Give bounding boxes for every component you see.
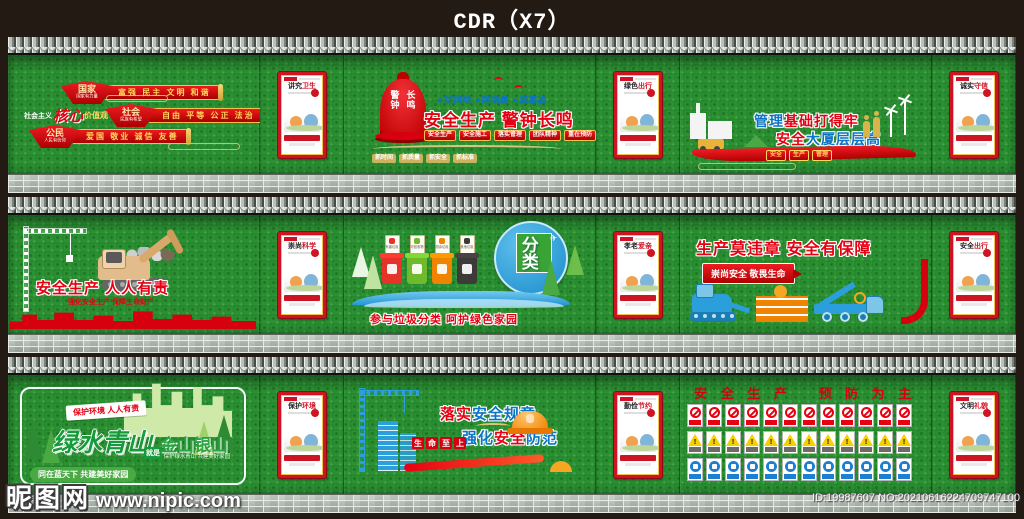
bell-title: 安全生产 警钟长鸣: [424, 106, 574, 131]
prohibition-sign: [782, 404, 798, 427]
factory-chimney: [696, 103, 700, 113]
warning-sign-label-band: [746, 447, 758, 452]
poster-footer-line: [625, 463, 651, 466]
bin-sign-card: 厨余垃圾: [435, 235, 450, 254]
bin-label: 有害垃圾: [386, 246, 399, 249]
poster-red-band: [620, 135, 656, 141]
responsibility-title: 安全生产 人人有责: [36, 277, 169, 298]
mandatory-sign-glyph: [728, 461, 739, 472]
prohibition-sign-glyph: [785, 407, 796, 418]
mandatory-sign: [858, 458, 874, 481]
warning-sign-label-band: [879, 447, 891, 452]
warning-sign-glyph: [745, 434, 759, 446]
crane-truck-icon: [814, 276, 888, 322]
roof-tiles: [8, 37, 1016, 55]
poster-title-black: 崇尚: [288, 243, 302, 250]
bin-label: 可回收物: [411, 246, 424, 249]
mandatory-sign-glyph: [785, 461, 796, 472]
prohibition-sign-glyph: [804, 407, 815, 418]
watermark-site-url: www.nipic.com: [96, 490, 241, 513]
prohibition-sign: [896, 404, 912, 427]
title-part: 落实: [440, 406, 472, 423]
wall-row-2: 安全生产 人人有责 强化安全生产 保障生命财产 崇尚科学 有害垃圾可回收物厨余垃…: [8, 197, 1016, 350]
poster-header: [620, 77, 656, 82]
poster-panel: 安全出行: [932, 215, 1016, 334]
title-part: 强化: [462, 430, 494, 447]
warning-sign-glyph: [783, 434, 797, 446]
illustration-shape: [622, 125, 662, 131]
poster-panel: 孝老爱亲: [596, 215, 680, 334]
prohibition-sign: [801, 404, 817, 427]
poster-red-band: [620, 455, 656, 461]
prohibition-sign-label-band: [765, 420, 777, 425]
warning-sign: [896, 431, 912, 454]
warning-sign-glyph: [802, 434, 816, 446]
warning-sign-label-band: [860, 447, 872, 452]
fan-title: 国家: [78, 85, 96, 94]
green-title-main: 绿水青山: [52, 423, 152, 459]
poster-illustration: [956, 256, 992, 292]
illustration-shape: [958, 445, 998, 451]
illustration-shape: [958, 125, 998, 131]
mural-safety-rules: 落实安全规章 强化安全防范 生 命 至 上: [344, 375, 596, 494]
poster-illustration: [956, 416, 992, 452]
poster-header: [284, 397, 320, 402]
mandatory-sign-label-band: [708, 474, 720, 479]
poster-seal-icon: [311, 409, 319, 417]
poster-illustration: [620, 256, 656, 292]
illustration-shape: [958, 285, 998, 291]
mandatory-sign: [763, 458, 779, 481]
warning-sign-label-band: [708, 447, 720, 452]
poster-illustration: [284, 416, 320, 452]
signs-grid: [687, 404, 912, 485]
poster-seal-icon: [647, 409, 655, 417]
poster-red-band: [956, 455, 992, 461]
mandatory-sign: [839, 458, 855, 481]
poster-footer-line: [961, 463, 987, 466]
poster-header: [620, 237, 656, 242]
prohibition-sign: [687, 404, 703, 427]
square-char: 命: [426, 437, 438, 449]
core-values-row-citizen: 公民 人民有信仰 爱国 敬业 诚信 友善: [28, 125, 191, 148]
poster-frame: 安全出行: [950, 232, 998, 318]
poster-seal-icon: [647, 249, 655, 257]
poster-title-black: 保护: [288, 403, 302, 410]
mandatory-sign-glyph: [766, 461, 777, 472]
bell-red-tabs: 安全生产 安全施工 落实管理 团队精神 重在预防: [424, 130, 596, 141]
poster-red-band: [620, 295, 656, 301]
safety-helmet-icon: [512, 411, 548, 430]
wall-row-1: 社会主义 核心 价值观 国家 国家有力量 富强 民主 文明 和谐 社会 民族有希…: [8, 37, 1016, 190]
title-part: 基础打得牢: [784, 113, 859, 129]
mandatory-sign-glyph: [880, 461, 891, 472]
design-preview-image: CDR（X7） 社会主义 核心 价值观 国家 国家有力量 富强 民主 文明 和谐: [0, 0, 1024, 519]
poster-footer-line: [961, 143, 987, 146]
format-label: CDR（X7）: [453, 3, 570, 35]
poster-seal-icon: [983, 409, 991, 417]
poster-title-black: 诚实: [960, 83, 974, 90]
wall-row-1-panels: 社会主义 核心 价值观 国家 国家有力量 富强 民主 文明 和谐 社会 民族有希…: [8, 55, 1016, 174]
illustration-shape: [286, 445, 326, 451]
warning-sign-label-band: [765, 447, 777, 452]
poster-frame: 崇尚科学: [278, 232, 326, 318]
poster-title-black: 文明: [960, 403, 974, 410]
prohibition-sign-label-band: [879, 420, 891, 425]
wall-row-2-panels: 安全生产 人人有责 强化安全生产 保障生命财产 崇尚科学 有害垃圾可回收物厨余垃…: [8, 215, 1016, 334]
square-char: 至: [440, 437, 452, 449]
fan-subtitle: 民族有希望: [120, 118, 142, 122]
warning-sign-glyph: [897, 434, 911, 446]
watermark-site-name: 昵图网: [6, 478, 90, 515]
prohibition-sign: [763, 404, 779, 427]
fan-subtitle: 国家有力量: [76, 95, 98, 99]
prohibition-sign-glyph: [823, 407, 834, 418]
poster-header: [284, 77, 320, 82]
watermark-id: ID:19987607 NO:20210616224709747100: [812, 492, 1020, 504]
mural-safety-signs: 安 全 生 产 预 防 为 主: [680, 375, 932, 494]
core-values-row-society: 社会 民族有希望 自由 平等 公正 法治: [104, 104, 260, 127]
prohibition-sign-row: [687, 404, 912, 427]
poster-title-black: 勤俭: [624, 403, 638, 410]
bell-text-col1: 警钟: [389, 90, 402, 135]
fan-subtitle: 人民有信仰: [44, 139, 66, 143]
poster-red-band: [284, 295, 320, 301]
prohibition-sign-glyph: [728, 407, 739, 418]
prohibition-sign-glyph: [709, 407, 720, 418]
poster-frame: 保护环境: [278, 392, 326, 478]
roof-tiles: [8, 357, 1016, 375]
prohibition-sign-glyph: [747, 407, 758, 418]
tree-icon: [542, 259, 560, 295]
mandatory-sign-label-band: [765, 474, 777, 479]
prohibition-sign-label-band: [727, 420, 739, 425]
bin-face-icon: [412, 264, 422, 274]
poster-red-band: [284, 455, 320, 461]
garbage-bin: 厨余垃圾: [432, 235, 452, 284]
mandatory-sign-label-band: [689, 474, 701, 479]
prohibition-sign-label-band: [803, 420, 815, 425]
bell-text-col2: 长鸣: [405, 90, 418, 135]
brick-wall-icon: [756, 296, 808, 322]
brick-base: [8, 174, 1016, 193]
warning-sign-glyph: [859, 434, 873, 446]
poster-panel: 崇尚科学: [260, 215, 344, 334]
poster-panel: 勤俭节约: [596, 375, 680, 494]
mandatory-sign: [820, 458, 836, 481]
mural-no-violation: 生产莫违章 安全有保障 崇尚安全 敬畏生命: [680, 215, 932, 334]
prohibition-sign: [839, 404, 855, 427]
mandatory-sign-glyph: [899, 461, 910, 472]
poster-red-band: [284, 135, 320, 141]
poster-footer-line: [289, 303, 315, 306]
mandatory-sign: [744, 458, 760, 481]
garbage-bin-body: [382, 257, 402, 284]
bell-gold-tabs: 抓时间 抓质量 抓安全 抓标准: [372, 154, 477, 163]
brick-base: [8, 334, 1016, 353]
mandatory-sign-glyph: [709, 461, 720, 472]
warning-sign-label-band: [822, 447, 834, 452]
poster-frame: 孝老爱亲: [614, 232, 662, 318]
bin-sign-card: 其他垃圾: [460, 235, 475, 254]
garbage-bin: 有害垃圾: [382, 235, 402, 284]
prohibition-sign-label-band: [708, 420, 720, 425]
poster-footer-line: [625, 303, 651, 306]
garbage-bin-body: [407, 257, 427, 284]
mandatory-sign: [782, 458, 798, 481]
illustration-shape: [286, 125, 326, 131]
warning-sign: [820, 431, 836, 454]
illustration-shape: [286, 285, 326, 291]
warning-sign-label-band: [689, 447, 701, 452]
poster-panel: 讲究卫生: [260, 55, 344, 174]
warning-sign: [801, 431, 817, 454]
mandatory-sign-glyph: [690, 461, 701, 472]
prohibition-sign-glyph: [861, 407, 872, 418]
garbage-slogan: 参与垃圾分类 呵护绿色家园: [370, 311, 518, 327]
mural-alarm-bell: 警钟 长鸣 ★防风险 ★除隐患 ★遏事故 安全生产 警钟长鸣 安全生产 安全施工…: [344, 55, 596, 174]
warning-sign-glyph: [840, 434, 854, 446]
bell-subtitle: ★防风险 ★除隐患 ★遏事故: [436, 93, 546, 106]
tree-icon: [24, 419, 42, 459]
prohibition-sign-glyph: [690, 407, 701, 418]
poster-seal-icon: [311, 89, 319, 97]
warning-sign: [858, 431, 874, 454]
title-part: 安全: [776, 131, 806, 147]
poster-title-black: 讲究: [288, 83, 302, 90]
mandatory-sign-label-band: [784, 474, 796, 479]
warning-sign-label-band: [841, 447, 853, 452]
bird-icon: [494, 77, 503, 84]
bin-label: 厨余垃圾: [436, 246, 449, 249]
mandatory-sign: [687, 458, 703, 481]
values-banner: 自由 平等 公正 法治: [149, 108, 260, 123]
prohibition-sign: [725, 404, 741, 427]
warning-sign-label-band: [803, 447, 815, 452]
prohibition-sign-label-band: [898, 420, 910, 425]
square-char: 上: [454, 437, 466, 449]
mandatory-sign-label-band: [860, 474, 872, 479]
alarm-bell-icon: 警钟 长鸣: [380, 79, 426, 135]
red-tab: 安全施工: [459, 130, 491, 141]
mandatory-sign-glyph: [804, 461, 815, 472]
poster-illustration: [620, 96, 656, 132]
building-icon: [378, 421, 398, 471]
prohibition-sign-label-band: [746, 420, 758, 425]
poster-header: [620, 397, 656, 402]
mural-core-values: 社会主义 核心 价值观 国家 国家有力量 富强 民主 文明 和谐 社会 民族有希…: [8, 55, 260, 174]
illustration-shape: [622, 285, 662, 291]
warning-sign-label-band: [727, 447, 739, 452]
gold-tab: 抓质量: [399, 154, 423, 163]
poster-frame: 勤俭节约: [614, 392, 662, 478]
prohibition-sign-label-band: [841, 420, 853, 425]
factory-illustration: [690, 107, 748, 149]
poster-footer-line: [625, 143, 651, 146]
mural-management: 管理基础打得牢 安全大厦层层高 安全 生产 管理: [680, 55, 932, 174]
poster-title-black: 绿色: [624, 83, 638, 90]
side-label-accent: 核心: [53, 105, 83, 126]
poster-header: [956, 237, 992, 242]
mandatory-sign: [801, 458, 817, 481]
person-silhouette: [863, 121, 870, 137]
bulldozer-icon: [686, 286, 750, 322]
bin-face-icon: [387, 264, 397, 274]
warning-sign: [725, 431, 741, 454]
ribbon-tabs: 安全 生产 管理: [766, 150, 832, 161]
worker-icon: [774, 285, 787, 298]
prohibition-sign: [877, 404, 893, 427]
mandatory-sign-glyph: [842, 461, 853, 472]
poster-illustration: [956, 96, 992, 132]
garbage-bin: 其他垃圾: [457, 235, 477, 284]
person-silhouette: [873, 117, 880, 137]
mandatory-sign: [725, 458, 741, 481]
red-tab: 团队精神: [529, 130, 561, 141]
prohibition-sign: [744, 404, 760, 427]
side-label-prefix: 社会主义: [24, 111, 52, 121]
bin-type-icon: [414, 238, 420, 244]
wall-row-3-panels: 保护环境 人人有责 绿水青山 就是 金山银山 保护绿水青山 共建美好家园 同在蓝…: [8, 375, 1016, 494]
roof-tiles: [8, 197, 1016, 215]
gold-tab: 抓安全: [426, 154, 450, 163]
warning-sign-glyph: [707, 434, 721, 446]
poster-panel: 保护环境: [260, 375, 344, 494]
mandatory-sign: [896, 458, 912, 481]
prohibition-sign-glyph: [899, 407, 910, 418]
prohibition-sign-label-band: [784, 420, 796, 425]
poster-header: [956, 77, 992, 82]
mandatory-sign-glyph: [747, 461, 758, 472]
prohibition-sign-label-band: [689, 420, 701, 425]
warning-sign-glyph: [764, 434, 778, 446]
red-tab: 重在预防: [564, 130, 596, 141]
warning-sign-label-band: [784, 447, 796, 452]
garbage-bin-body: [432, 257, 452, 284]
life-first-squares: 生 命 至 上: [412, 437, 466, 449]
warning-sign-row: [687, 431, 912, 454]
factory-tower: [690, 113, 706, 139]
tree-icon: [566, 245, 584, 275]
title-part: 管理: [754, 113, 784, 129]
mandatory-sign-label-band: [746, 474, 758, 479]
mandatory-sign-label-band: [879, 474, 891, 479]
illustration-shape: [622, 445, 662, 451]
poster-illustration: [620, 416, 656, 452]
core-values-side-label: 社会主义 核心 价值观: [24, 105, 108, 126]
warning-sign: [839, 431, 855, 454]
bin-sign-card: 有害垃圾: [385, 235, 400, 254]
signs-title: 安 全 生 产 预 防 为 主: [694, 383, 916, 402]
garbage-bin: 可回收物: [407, 235, 427, 284]
mandatory-sign-glyph: [823, 461, 834, 472]
square-char: 生: [412, 437, 424, 449]
gold-cloud-decor: [106, 95, 168, 102]
management-title-line1: 管理基础打得牢: [754, 111, 859, 131]
poster-seal-icon: [311, 249, 319, 257]
warning-sign-glyph: [821, 434, 835, 446]
warning-sign: [763, 431, 779, 454]
warning-sign: [687, 431, 703, 454]
mandatory-sign-label-band: [898, 474, 910, 479]
bin-type-icon: [439, 238, 445, 244]
gold-cloud-decor: [168, 143, 240, 150]
prohibition-sign-glyph: [880, 407, 891, 418]
poster-frame: 文明礼貌: [950, 392, 998, 478]
poster-title-black: 安全: [960, 243, 974, 250]
poster-illustration: [284, 96, 320, 132]
warning-sign-glyph: [878, 434, 892, 446]
poster-panel: 文明礼貌: [932, 375, 1016, 494]
bin-face-icon: [462, 264, 472, 274]
ribbon-tab: 安全: [766, 150, 786, 161]
prohibition-sign: [820, 404, 836, 427]
warning-sign: [782, 431, 798, 454]
fan-title: 社会: [122, 108, 140, 117]
mountain-icon: [744, 135, 768, 147]
prohibition-sign-glyph: [766, 407, 777, 418]
wind-turbine-icon: [904, 101, 906, 135]
gold-tab: 抓时间: [372, 154, 396, 163]
bin-type-icon: [389, 238, 395, 244]
poster-header: [284, 237, 320, 242]
garbage-bin-body: [457, 257, 477, 284]
warning-sign-glyph: [726, 434, 740, 446]
poster-frame: 绿色出行: [614, 72, 662, 158]
mandatory-sign: [877, 458, 893, 481]
warning-sign-glyph: [688, 434, 702, 446]
poster-frame: 诚实守信: [950, 72, 998, 158]
red-ribbon-swoosh: [901, 259, 928, 324]
mandatory-sign: [706, 458, 722, 481]
gold-scroll-line: [372, 145, 562, 153]
prohibition-sign: [706, 404, 722, 427]
gold-cloud-decor: [698, 163, 796, 170]
poster-panel: 绿色出行: [596, 55, 680, 174]
poster-red-band: [956, 295, 992, 301]
poster-seal-icon: [647, 89, 655, 97]
poster-seal-icon: [983, 249, 991, 257]
warning-sign: [744, 431, 760, 454]
scroll-end-icon: [218, 84, 223, 101]
mandatory-sign-label-band: [727, 474, 739, 479]
green-subtitle: 保护绿水青山 共建美好家园: [164, 451, 230, 459]
prohibition-sign-glyph: [842, 407, 853, 418]
warning-sign: [706, 431, 722, 454]
poster-frame: 讲究卫生: [278, 72, 326, 158]
mural-responsibility: 安全生产 人人有责 强化安全生产 保障生命财产: [8, 215, 260, 334]
poster-header: [956, 397, 992, 402]
values-banner: 爱国 敬业 诚信 友善: [73, 129, 188, 144]
ribbon-tab: 生产: [789, 150, 809, 161]
bin-face-icon: [437, 264, 447, 274]
bird-icon: [514, 85, 523, 92]
truck-icon: [698, 139, 724, 149]
poster-title-black: 孝老: [624, 243, 638, 250]
tree-icon: [364, 255, 382, 289]
prohibition-sign-label-band: [822, 420, 834, 425]
red-tab: 安全生产: [424, 130, 456, 141]
poster-footer-line: [289, 463, 315, 466]
water-wave-light: [364, 299, 564, 308]
plane-icon: ✈: [549, 232, 559, 244]
mandatory-sign-label-band: [803, 474, 815, 479]
responsibility-subtitle: 强化安全生产 保障生命财产: [68, 297, 154, 307]
gold-tab: 抓标准: [453, 154, 477, 163]
gold-scroll-line: [476, 423, 510, 429]
prohibition-sign-label-band: [860, 420, 872, 425]
warning-sign-label-band: [898, 447, 910, 452]
